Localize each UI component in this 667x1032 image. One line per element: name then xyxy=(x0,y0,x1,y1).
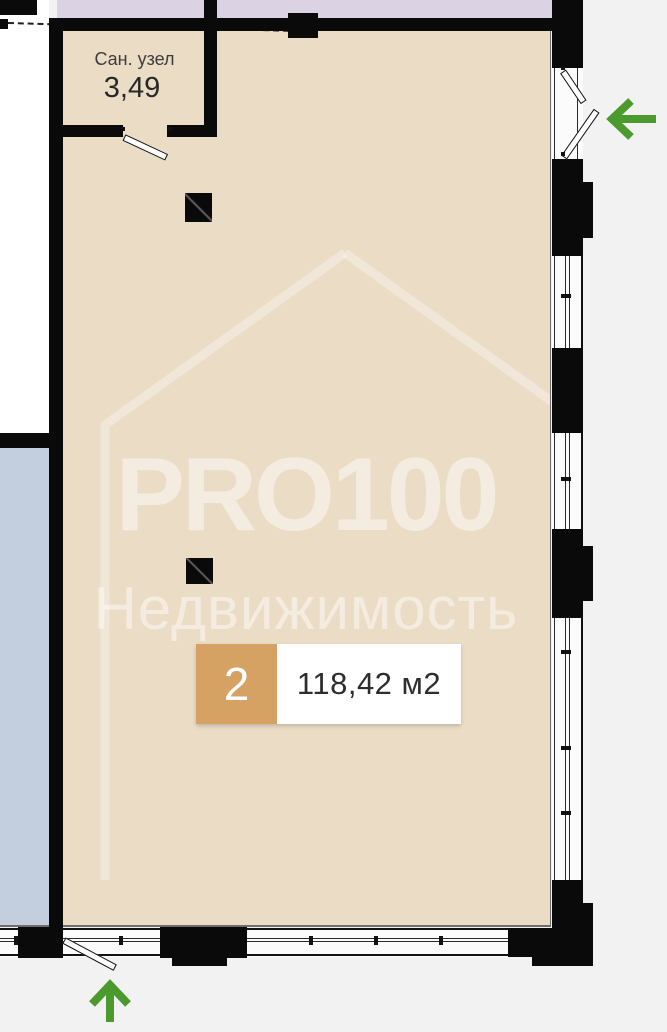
window-frame-line xyxy=(581,433,583,529)
room-edge-line-right xyxy=(550,31,551,925)
column-lower xyxy=(186,558,213,584)
window-mullion xyxy=(119,936,123,945)
wall-pillar-right-3 xyxy=(552,529,583,618)
unit-area-label: 118,42 м2 xyxy=(277,644,461,724)
region-neighbor-left xyxy=(0,448,49,925)
door-hinge xyxy=(121,127,125,131)
unit-number-badge: 2 xyxy=(196,644,277,724)
window-glass-line xyxy=(569,256,570,348)
wall-pillar-top xyxy=(288,13,318,38)
window-frame-line xyxy=(554,618,555,880)
wall-segment-left-horizontal xyxy=(0,433,50,448)
bathroom-name-label: Сан. узел xyxy=(62,49,207,70)
window-glass-line xyxy=(569,433,570,529)
wall-pillar-bottom-left xyxy=(18,927,63,958)
window-mullion xyxy=(561,477,571,481)
wall-pillar-bottom-middle xyxy=(160,927,247,958)
window-glass-line xyxy=(565,433,566,529)
column-upper xyxy=(185,193,212,222)
bathroom-area-label: 3,49 xyxy=(62,72,202,105)
window-mullion xyxy=(561,294,571,298)
wall-segment-bathroom-bottom-right xyxy=(167,125,217,137)
wall-segment-bathroom-bottom-left xyxy=(63,125,123,137)
entrance-arrow-left-icon xyxy=(600,95,662,143)
region-adjacent-white-notch xyxy=(37,0,49,17)
window-mullion xyxy=(561,650,571,654)
window-glass-line xyxy=(0,941,508,942)
watermark-subtitle: Недвижимость xyxy=(82,579,530,639)
window-mullion xyxy=(561,811,571,815)
wall-pillar-bottom-middle-ledge xyxy=(172,957,227,966)
window-frame-line xyxy=(581,618,583,880)
wall-segment-top-stub xyxy=(0,19,8,29)
wall-pillar-right-2 xyxy=(552,348,583,433)
door-hinge xyxy=(561,66,565,70)
unit-label: 2 118,42 м2 xyxy=(196,644,461,724)
door-frame-line xyxy=(577,65,578,161)
wall-pillar-right-3-ledge xyxy=(583,546,593,601)
window-frame-line xyxy=(554,256,555,348)
window-mullion xyxy=(561,746,571,750)
wall-pillar-right-1 xyxy=(552,159,583,256)
wall-pillar-right-corner-top xyxy=(552,0,583,68)
entrance-arrow-up-icon xyxy=(84,976,136,1026)
wall-segment-top-left-block xyxy=(0,0,37,15)
main-room-floor: PRO100 Недвижимость xyxy=(62,31,550,925)
room-edge-line-bottom xyxy=(0,925,551,927)
floor-plan: PRO100 Недвижимость xyxy=(0,0,667,1032)
window-mullion xyxy=(374,936,378,945)
window-frame-line xyxy=(0,954,508,956)
window-frame-line xyxy=(554,433,555,529)
wall-corner-bottom-right-d xyxy=(532,928,593,966)
window-frame-line xyxy=(581,256,583,348)
wall-segment-top xyxy=(57,18,583,31)
door-hinge xyxy=(168,127,172,131)
window-glass-line xyxy=(0,938,508,939)
door-hinge xyxy=(561,152,565,156)
window-glass-line xyxy=(565,256,566,348)
wall-segment-left xyxy=(49,18,63,927)
window-mullion xyxy=(309,936,313,945)
region-adjacent-white xyxy=(0,15,49,433)
window-frame-line xyxy=(0,928,508,930)
window-mullion xyxy=(439,936,443,945)
watermark-brand: PRO100 xyxy=(82,443,530,547)
door-frame-line xyxy=(554,65,555,161)
wall-pillar-right-1-ledge xyxy=(583,182,593,238)
